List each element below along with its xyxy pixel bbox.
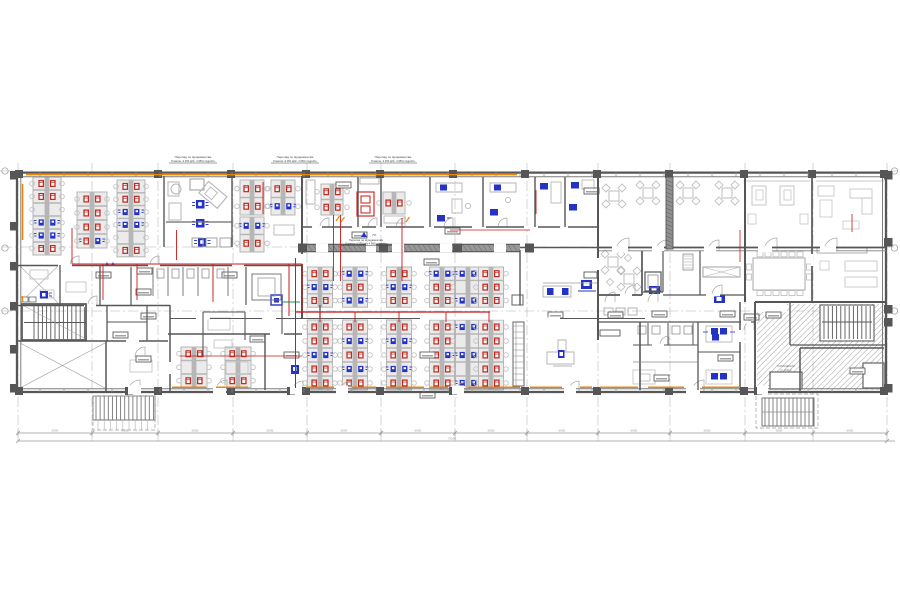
svg-text:7%: 7% [372, 233, 377, 237]
svg-text:6000: 6000 [631, 429, 638, 433]
svg-text:6000: 6000 [341, 429, 348, 433]
svg-text:Отметка -3.150 (абс. 4.950) по: Отметка -3.150 (абс. 4.950) подробн. [171, 159, 216, 163]
svg-text:Перепад по фундаментам: Перепад по фундаментам [375, 155, 412, 159]
svg-text:Перепад по фундаментам: Перепад по фундаментам [277, 155, 314, 159]
svg-text:6000: 6000 [415, 429, 422, 433]
svg-text:6000: 6000 [704, 429, 711, 433]
svg-text:6000: 6000 [847, 429, 854, 433]
svg-text:Отметка -3.150 (абс. 4.950) по: Отметка -3.150 (абс. 4.950) подробн. [371, 159, 416, 163]
svg-text:Отметка -3.150 (абс.4.950) под: Отметка -3.150 (абс.4.950) подробн. [345, 243, 387, 246]
svg-text:6000: 6000 [559, 429, 566, 433]
svg-text:Отметка -3.150 (абс. 4.950) по: Отметка -3.150 (абс. 4.950) подробн. [273, 159, 318, 163]
svg-text:6000: 6000 [52, 429, 59, 433]
svg-text:72000: 72000 [448, 437, 457, 441]
svg-text:6000: 6000 [776, 429, 783, 433]
svg-text:Перепад по фундаментам: Перепад по фундаментам [349, 238, 383, 242]
svg-text:6000: 6000 [267, 429, 274, 433]
svg-text:ул. 4643 m: ул. 4643 m [780, 369, 792, 372]
svg-text:ПОМЕЩЕНИЕ: ПОМЕЩЕНИЕ [777, 364, 795, 368]
svg-text:Перепад по фундаментам: Перепад по фундаментам [175, 155, 212, 159]
svg-text:6000: 6000 [488, 429, 495, 433]
svg-text:6000: 6000 [192, 429, 199, 433]
